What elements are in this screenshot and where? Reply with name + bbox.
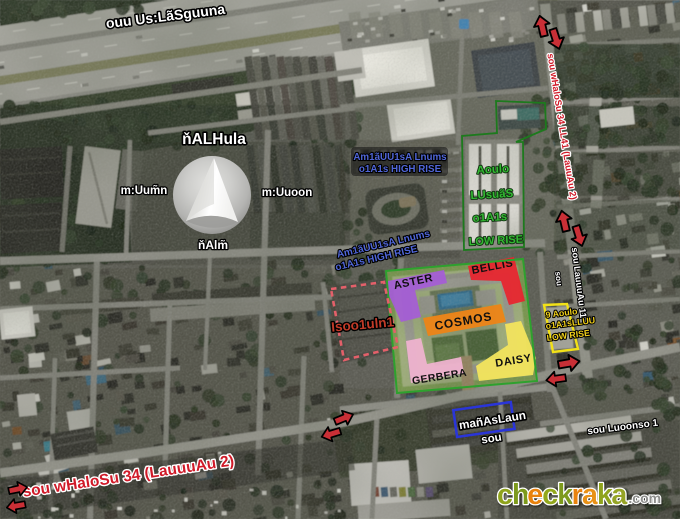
svg-text:m:Uum̃n: m:Uum̃n: [121, 185, 168, 197]
svg-text:o1A1s HIGH RISE: o1A1s HIGH RISE: [359, 164, 442, 175]
svg-text:Aoulo: Aoulo: [476, 163, 509, 177]
svg-text:ňALHula: ňALHula: [182, 131, 246, 148]
svg-text:.com: .com: [628, 490, 661, 506]
svg-text:LUsuãS: LUsuãS: [470, 188, 514, 202]
svg-text:a: a: [611, 479, 628, 511]
svg-text:c: c: [497, 479, 513, 511]
svg-text:e: e: [527, 479, 543, 511]
svg-text:Am1ãUU1sA Lnums: Am1ãUU1sA Lnums: [353, 152, 447, 163]
svg-text:sou: sou: [553, 271, 564, 287]
svg-text:c: c: [542, 479, 558, 511]
svg-text:m:Uuoon: m:Uuoon: [262, 187, 312, 199]
svg-text:ňAlm̃: ňAlm̃: [198, 238, 228, 252]
svg-text:o1A1s: o1A1s: [472, 211, 507, 225]
